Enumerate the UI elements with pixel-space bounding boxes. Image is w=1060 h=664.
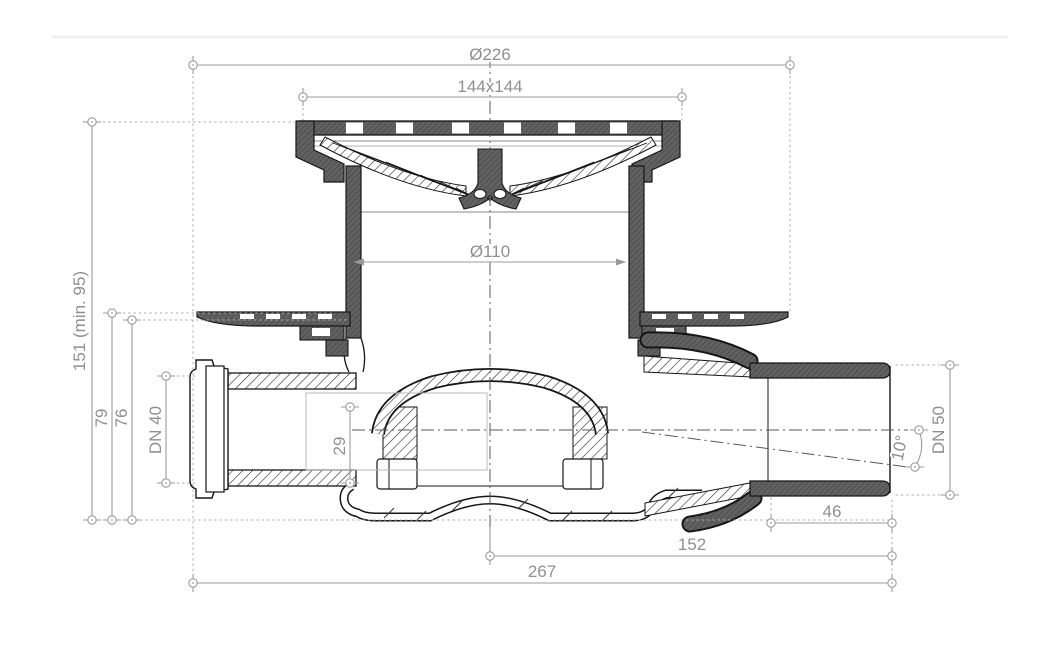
dim-label-grate: 144x144	[457, 77, 522, 96]
technical-drawing-page: Ø226 144x144 Ø110 151 (min. 95) 79	[0, 0, 1060, 664]
dim-label-seal-depth: 29	[330, 437, 349, 456]
dim-label-dia-outer: Ø226	[469, 45, 511, 64]
dim-label-height-total: 151 (min. 95)	[70, 271, 89, 371]
dim-label-total-length: 267	[528, 562, 556, 581]
dim-label-height-76: 76	[112, 409, 131, 428]
dim-label-dia-body: Ø110	[470, 242, 510, 261]
dim-label-socket-length: 46	[823, 502, 842, 521]
dim-label-height-79: 79	[92, 409, 111, 428]
dim-label-inlet: DN 40	[146, 406, 165, 454]
dim-label-outlet: DN 50	[929, 406, 948, 454]
dim-label-center-to-end: 152	[678, 535, 706, 554]
floor-drain-drawing: Ø226 144x144 Ø110 151 (min. 95) 79	[0, 0, 1060, 664]
